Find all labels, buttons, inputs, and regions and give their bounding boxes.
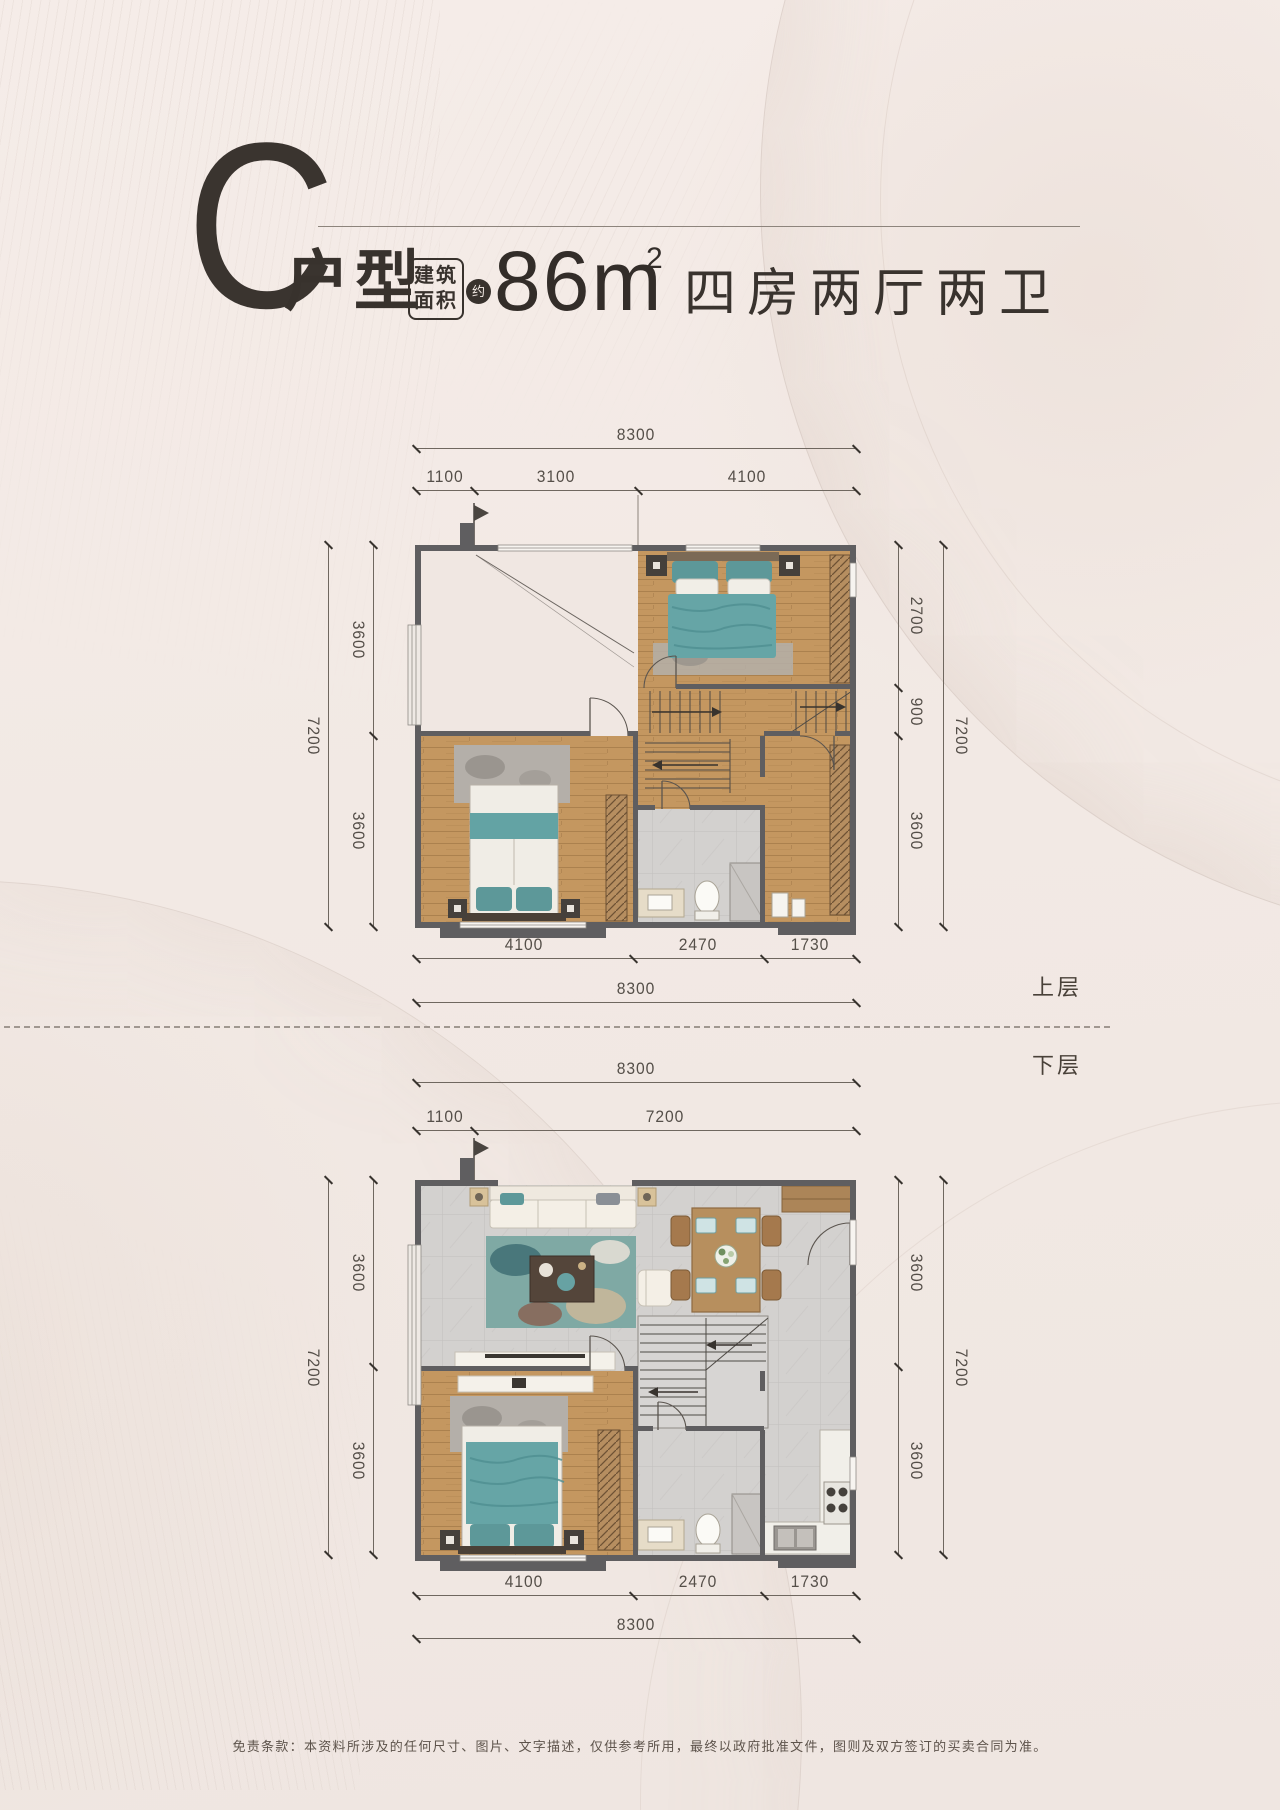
floor-divider-dashed-line [4, 1026, 1110, 1028]
lower-dim-left-outer: 7200 [324, 1180, 332, 1555]
dim-label: 2470 [679, 1572, 717, 1592]
dim-label: 3600 [906, 812, 926, 850]
dim-label: 3600 [906, 1442, 926, 1480]
upper-dim-bottom-total: 8300 [416, 998, 856, 1006]
dim-label: 3600 [348, 1254, 368, 1292]
lower-dim-right-outer: 7200 [939, 1180, 947, 1555]
building-area-badge: 建筑 面积 [408, 258, 464, 320]
dim-label: 8300 [617, 979, 655, 999]
upper-dim-right-outer: 7200 [939, 545, 947, 927]
dim-label: 3600 [906, 1254, 926, 1292]
upper-floor-plan-drawing [400, 495, 870, 955]
upper-dim-right-segments: 2700 900 3600 [894, 545, 902, 927]
upper-dim-top-total: 8300 [416, 444, 856, 452]
lower-floor-plan-drawing [400, 1130, 870, 1600]
upper-floor-label: 上层 [1032, 970, 1082, 1002]
dim-label: 3600 [348, 812, 368, 850]
dim-label: 1730 [791, 935, 829, 955]
dim-label: 2700 [906, 597, 926, 635]
background-finelines-bottomleft [0, 1150, 360, 1790]
dim-label: 7200 [303, 717, 323, 755]
dim-label: 8300 [617, 425, 655, 445]
upper-dim-left-segments: 3600 3600 [369, 545, 377, 927]
lower-dim-top-segments: 1100 7200 [416, 1126, 856, 1134]
rooms-summary: 四房两厅两卫 [684, 251, 1062, 326]
header-row: 户型 建筑 面积 约 86m 2 四房两厅两卫 [284, 228, 1084, 328]
area-badge-line2: 面积 [413, 289, 459, 314]
lower-dim-top-total: 8300 [416, 1078, 856, 1086]
lower-dim-bottom-segments: 4100 2470 1730 [416, 1591, 856, 1599]
dim-label: 8300 [617, 1059, 655, 1079]
dim-label: 4100 [728, 467, 766, 487]
floorplan-flyer-page: C 户型 建筑 面积 约 86m 2 四房两厅两卫 [0, 0, 1280, 1810]
disclaimer-text: 免责条款：本资料所涉及的任何尺寸、图片、文字描述，仅供参考所用，最终以政府批准文… [0, 1736, 1280, 1755]
upper-dim-bottom-segments: 4100 2470 1730 [416, 954, 856, 962]
dim-label: 4100 [505, 935, 543, 955]
area-badge-line1: 建筑 [413, 264, 459, 289]
unit-type-label: 户型 [284, 228, 424, 324]
upper-dim-top-segments: 1100 3100 4100 [416, 486, 856, 494]
dim-label: 7200 [951, 717, 971, 755]
dim-label: 3600 [348, 1442, 368, 1480]
dim-label: 2470 [679, 935, 717, 955]
area-value: 86m [494, 233, 663, 330]
dim-label: 7200 [303, 1349, 323, 1387]
lower-dim-bottom-total: 8300 [416, 1634, 856, 1642]
dim-label: 3100 [537, 467, 575, 487]
lower-floor-label: 下层 [1032, 1048, 1082, 1080]
dim-label: 8300 [617, 1615, 655, 1635]
dim-label: 900 [906, 698, 926, 727]
dim-label: 3600 [348, 621, 368, 659]
dim-label: 1100 [426, 467, 463, 487]
upper-dim-left-outer: 7200 [324, 545, 332, 927]
dim-label: 7200 [646, 1107, 684, 1127]
header-rule [318, 226, 1080, 227]
lower-dim-right-segments: 3600 3600 [894, 1180, 902, 1555]
area-exponent: 2 [646, 242, 663, 276]
lower-dim-left-segments: 3600 3600 [369, 1180, 377, 1555]
dim-label: 4100 [505, 1572, 543, 1592]
dim-label: 7200 [951, 1349, 971, 1387]
approx-badge: 约 [466, 279, 491, 304]
dim-label: 1730 [791, 1572, 829, 1592]
dim-label: 1100 [426, 1107, 463, 1127]
